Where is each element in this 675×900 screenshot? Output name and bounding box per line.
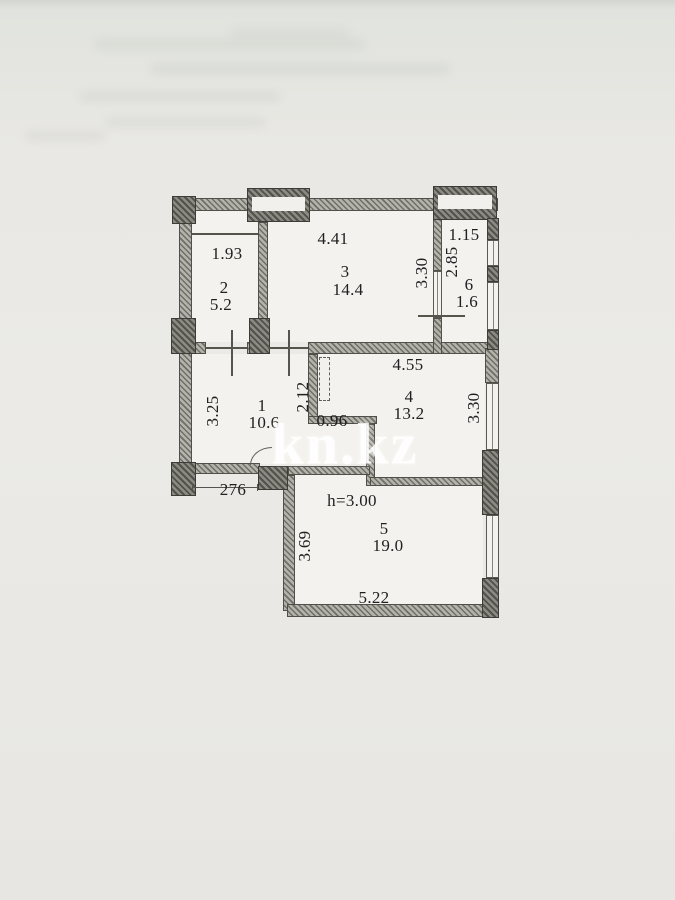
pilaster-right-bottom xyxy=(482,578,499,618)
vent-shaft-top-middle-cavity xyxy=(252,197,305,211)
wall-room3-room6-upper xyxy=(433,211,442,271)
dim-room3-width: 4.41 xyxy=(318,229,349,249)
wall-middle-segment-right xyxy=(308,342,497,354)
room5-area: 19.0 xyxy=(373,536,404,556)
dim-room5-height: 3.69 xyxy=(295,531,315,562)
scanned-floor-plan-page: 1.93 2 5.2 4.41 3 14.4 3.30 1.15 2.85 6 … xyxy=(0,0,675,900)
window-room6-right-lower xyxy=(487,282,499,330)
kn-kz-watermark: kn.kz xyxy=(271,411,418,478)
room3-area: 14.4 xyxy=(333,280,364,300)
pilaster-top-left-corner xyxy=(172,196,196,224)
wall-right-room4-upper xyxy=(485,348,499,383)
bleed-through-smudge xyxy=(80,92,280,101)
bleed-through-smudge xyxy=(150,64,450,74)
pilaster-room2-room3-end xyxy=(249,318,270,354)
door-threshold-room2 xyxy=(206,347,247,349)
pilaster-right-room6-c xyxy=(487,330,499,350)
window-room4-right xyxy=(486,383,499,450)
wall-room3-room6-lower xyxy=(433,318,442,354)
room6-area: 1.6 xyxy=(456,292,478,312)
room2-closet-line xyxy=(192,233,258,235)
room-3-floor xyxy=(268,211,433,342)
tick-room6-bottom xyxy=(418,315,465,317)
dim-room5-width: 5.22 xyxy=(359,588,390,608)
wall-room4-room5 xyxy=(370,477,485,486)
dim-room2-width: 1.93 xyxy=(212,244,243,264)
dim-room3-height: 3.30 xyxy=(412,258,432,289)
dim-hall-bottom: 276 xyxy=(220,480,246,500)
dim-276-tick-right xyxy=(257,484,258,491)
window-room5-right xyxy=(486,515,499,578)
dim-276-tick-left xyxy=(192,484,193,491)
vent-shaft-dashed xyxy=(319,357,330,401)
balcony-door-room3-room6 xyxy=(433,271,442,318)
bleed-through-smudge xyxy=(230,30,350,37)
dim-hall-height: 3.25 xyxy=(203,396,223,427)
dim-niche-height: 2.12 xyxy=(293,382,313,413)
dim-room6-width: 1.15 xyxy=(449,225,480,245)
dim-room4-height: 3.30 xyxy=(464,393,484,424)
window-room6-right-upper xyxy=(487,240,499,266)
bleed-through-smudge xyxy=(95,40,365,49)
pilaster-left-middle xyxy=(171,318,196,354)
room2-area: 5.2 xyxy=(210,295,232,315)
bleed-through-smudge xyxy=(25,132,105,140)
ceiling-height-note: h=3.00 xyxy=(327,491,377,511)
bleed-through-smudge xyxy=(105,118,265,126)
door-leaf-tick-room3 xyxy=(288,330,290,376)
dim-room6-height: 2.85 xyxy=(442,247,462,278)
pilaster-right-middle xyxy=(482,450,499,515)
room3-number: 3 xyxy=(341,262,350,282)
pilaster-right-room6-b xyxy=(487,266,499,282)
pilaster-right-room6-a xyxy=(487,218,499,240)
vent-shaft-top-right-cavity xyxy=(438,195,492,209)
dim-room4-width: 4.55 xyxy=(393,355,424,375)
door-leaf-tick-room2 xyxy=(231,330,233,376)
wall-room5-left xyxy=(283,475,295,611)
